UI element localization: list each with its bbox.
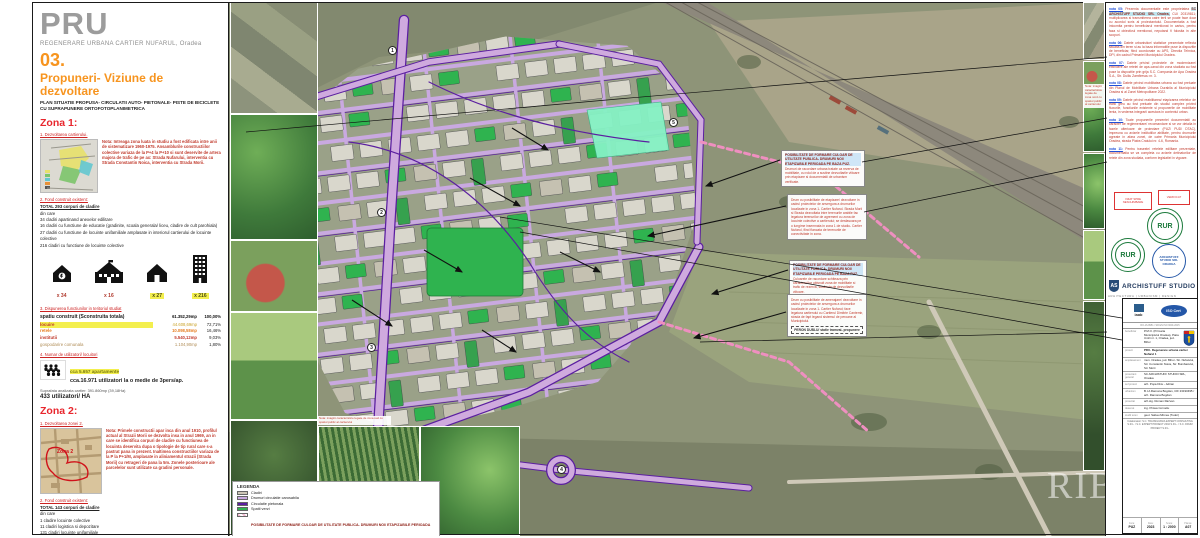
road-marker: 5: [669, 118, 678, 127]
home-icon: [145, 262, 169, 284]
peron-dublu-label: PERON DUBLU/ statie tramvai- propunere: [791, 326, 863, 334]
zona2-section1-label: 1. Dezvoltarea zonei 2.: [40, 421, 221, 426]
annex-building-icon: [51, 262, 73, 284]
zona1-functions-table: spatiu construit (Sconstruita totala) 61…: [40, 314, 221, 348]
map-caption-right: Nota: imagini caracteristice legate de z…: [1083, 84, 1105, 108]
zona2-nota: Nota: Primele constructii apar inca din …: [106, 428, 221, 494]
zona1-section4-label: 4. Numar de utilizatori/ locuitori: [40, 352, 221, 357]
office-round-stamp: ARCHISTUFF STUDIO SRL ORADEA: [1152, 244, 1186, 278]
archistuff-branding: AS ARCHISTUFF STUDIO ARHITECTURA | URBAN…: [1108, 279, 1198, 298]
zona2-thumb-label: Zona 2: [57, 449, 73, 455]
table-header-mp: 61.352,29mp: [153, 314, 197, 320]
table-header-pct: 100,00%: [197, 314, 221, 320]
zona1-icon-count: x 16: [104, 293, 114, 299]
road-marker: 4: [557, 465, 566, 474]
pru-subtitle: REGENERARE URBANA CARTIER NUFARUL, Orade…: [40, 41, 221, 47]
oradea-crest-icon: [1183, 330, 1195, 346]
legend-swatch-pedestrian: [237, 502, 248, 506]
title-block: iaab ISO Cert RO-16-8951 / SR EN ISO 900…: [1122, 298, 1198, 534]
zona2-section2-label: 2. Fond construit existent:: [40, 498, 221, 503]
zona1-item: 216 cladiri cu functiune de locuinte col…: [40, 243, 221, 249]
note-item: nota 07: Datele privind proiectele de mo…: [1109, 61, 1196, 78]
watermark: RIB: [1047, 464, 1105, 508]
road-marker: 3: [367, 343, 376, 352]
table-row: gospodarire comunala 1.104,90mp 1,80%: [40, 342, 221, 349]
zona2-item: 131 cladiri locuinte unifamiliale: [40, 530, 221, 534]
note-item: nota 08: Datele privind mobilitatea urba…: [1109, 81, 1196, 94]
sheet-title: Propuneri- Viziune de dezvoltare: [40, 72, 221, 97]
rur-stamp-2: RUR: [1111, 238, 1145, 272]
svg-text:AS: AS: [1111, 283, 1119, 289]
sheet-number: 03.: [40, 51, 221, 69]
photo-garden: [1083, 230, 1105, 300]
zona1-heading: Zona 1:: [40, 118, 221, 129]
pru-logo: PRU: [40, 8, 221, 39]
titleblock-row: sef proiectarh. Popa Dinu - Adrian: [1123, 382, 1197, 389]
photo-park-4: [1083, 153, 1105, 229]
titleblock-footer: Faza:PUZ Data:2023 Scara:1 : 2000 Plansa…: [1123, 518, 1197, 533]
callout-road-etapizare: Drum cu posibilitate de etapizare/ dezvo…: [787, 194, 867, 240]
zona1-section2-label: 2. Fond construit existent:: [40, 197, 221, 202]
zona2-building-list: TOTAL 143 corpuri de cladire din care 1 …: [40, 505, 221, 534]
shield-logo-icon: AS: [1108, 279, 1120, 293]
stamp-vizat: VIZAT SPRE NESCHIMBARE: [1114, 192, 1152, 210]
zona1-item: 16 cladiri cu functiune de educatie (gra…: [40, 223, 221, 229]
left-panel: PRU REGENERARE URBANA CARTIER NUFARUL, O…: [33, 3, 228, 534]
zona1-building-list: TOTAL 293 corpuri de cladire din care 34…: [40, 204, 221, 249]
titleblock-row: beneficiar P.M.O. (Primaria Municipiului…: [1123, 329, 1197, 348]
photo-trees: [1083, 301, 1105, 471]
table-row: institutii 5.540,12mp 9,03%: [40, 335, 221, 342]
titleblock-row: proiectant generalSC ARCHISTUFF STUDIO S…: [1123, 372, 1197, 382]
school-icon: [94, 260, 124, 284]
zona2-historic-map-thumbnail: Zona 2: [40, 428, 102, 494]
note-item: nota 05: Prezenta documentatie este prop…: [1109, 7, 1196, 37]
zona1-thumb-graphic: [41, 140, 98, 193]
callout-road-amenajare: Drum cu posibilitate de amenajare/ dezvo…: [787, 294, 867, 337]
zona1-icons-row: x 34 x 16 x 27: [40, 254, 221, 302]
collaborators: Colaboratori: S.C. TRANSILVANIA EXPERT C…: [1123, 419, 1197, 518]
plan-sheet: PRU REGENERARE URBANA CARTIER NUFARUL, O…: [0, 0, 1200, 538]
tower-block-icon: [190, 254, 210, 284]
titleblock-row: urbanismB.I.A Ramona Bogdan, CIF 2319049…: [1123, 389, 1197, 399]
zona1-icon-count: x 34: [57, 293, 67, 299]
table-header-label: spatiu construit (Sconstruita totala): [40, 314, 153, 322]
zona1-section3-label: 3. Dispunerea functiunilor in teritoriul…: [40, 306, 221, 311]
plan-caption: PLAN SITUATIE PROPUSA- CIRCULATII AUTO- …: [40, 100, 221, 111]
callout-utility-corridor-2: POSIBILITATE DE FORMARE CULOAR DE UTILIT…: [789, 260, 867, 297]
zona1-map-thumbnail: [40, 139, 98, 193]
titleblock-row: studii terengeol. Sabau Mircea (Tudor): [1123, 413, 1197, 420]
note-item: nota 09: Datele privind reabilitarea/ et…: [1109, 98, 1196, 115]
table-row: retele 10.098,58mp 16,46%: [40, 328, 221, 335]
zona2-heading: Zona 2:: [40, 406, 221, 417]
zona1-apartments-highlight: cca 5.657 apartamente: [70, 369, 119, 374]
road-marker: 1: [388, 46, 397, 55]
photo-park-lawn: [230, 312, 318, 420]
note-item: nota 06: Datele urbanistice/ statistice …: [1109, 41, 1196, 58]
titleblock-row: proiectatarh.stg. Roman Razvan: [1123, 399, 1197, 406]
people-group-icon: [40, 360, 66, 380]
photo-strip-right: [1083, 2, 1105, 472]
map-legend: LEGENDA Cladiri Drumuri circulatie caros…: [232, 481, 440, 536]
stamp-verificat: VERIFICAT: [1158, 190, 1190, 205]
iaab-logo: iaab: [1134, 304, 1144, 317]
note-item: nota 11: Pentru traseele/ retelele edili…: [1109, 147, 1196, 160]
legend-swatch-corridor: [237, 513, 248, 517]
iso-cert-badge: ISO Cert: [1161, 305, 1187, 317]
photo-playground: [230, 240, 318, 312]
titleblock-row: amplasamentmun. Oradea, jud. Bihor- Str.…: [1123, 358, 1197, 372]
note-item: nota 10: Toate propunerile prezentei doc…: [1109, 118, 1196, 144]
zona1-users: cca.16.971 utilizatori la o medie de 3pe…: [70, 378, 183, 385]
road-marker: 2: [377, 208, 386, 217]
zona1-nota: Nota: Intreaga zona luata in studiu a fo…: [102, 139, 221, 193]
zona1-section1-label: 1. Dezvoltarea cartierului.: [40, 132, 221, 137]
photo-park-render-1: [230, 114, 318, 240]
legend-swatch-buildings: [237, 491, 248, 495]
zona1-item: 27 cladiri cu functiune de locuinte unif…: [40, 230, 221, 243]
titleblock-row: proiectPRU- Regenerare urbana cartier Nu…: [1123, 348, 1197, 358]
table-row: locuire 44.608,69mp 72,71%: [40, 322, 221, 329]
titleblock-row: desenating. Pintea Corneliu: [1123, 406, 1197, 413]
iaab-logo-mark: [1134, 304, 1144, 312]
callout-utility-corridor-1: POSIBILITATE DE FORMARE CULOAR DE UTILIT…: [781, 150, 865, 187]
legend-swatch-roads: [237, 496, 248, 500]
zona1-area-note: Suprafata analizata cartier: 391.860mp (…: [40, 388, 221, 393]
aerial-map: Nota: imagini caracteristice legate de z…: [228, 2, 1105, 536]
map-caption-bottom: Nota: imagini caracteristice legate de z…: [317, 416, 391, 425]
photo-aerial-1: [230, 2, 318, 114]
legend-swatch-green: [237, 507, 248, 511]
zona1-density: 433 utilizatori/ HA: [40, 394, 221, 400]
zona1-icon-count: x 27: [150, 293, 164, 299]
rur-stamp-1: RUR: [1147, 208, 1183, 244]
zona1-icon-count: x 216: [192, 293, 209, 299]
photo-aerial-2: [1083, 2, 1105, 60]
